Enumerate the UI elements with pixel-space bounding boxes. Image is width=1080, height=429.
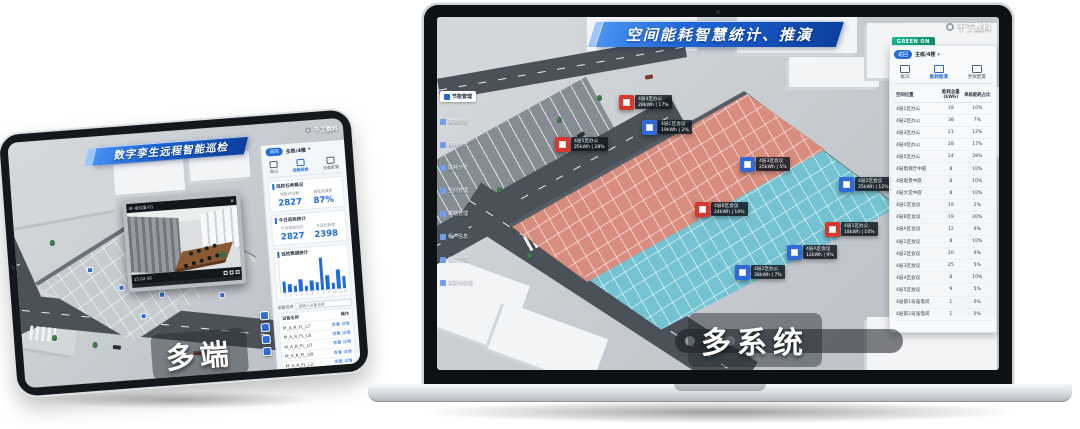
chairs [184, 264, 188, 268]
chart-bar [342, 276, 346, 288]
laptop-shadow [380, 399, 1060, 425]
floor-selector[interactable]: 主栋/4楼 ▾ [285, 146, 310, 155]
laptop-overlay-label: 多系统 [688, 313, 822, 367]
panel-header: 返回 主栋/4楼 ▾ [894, 50, 992, 59]
fullscreen-icon[interactable] [235, 269, 239, 273]
map-tool-button[interactable] [260, 311, 270, 321]
chart-category: 10 [333, 290, 337, 294]
floor-selector[interactable]: 主栋/4楼 ▾ [915, 51, 940, 58]
building-icon [787, 245, 802, 260]
panel-tabs: 概况 远程巡检 设备配置 [266, 154, 342, 179]
car [113, 345, 121, 350]
brand-logo: 千丁数科 [305, 123, 339, 134]
brand-logo: 千丁数科 [946, 21, 991, 33]
panel-tab[interactable]: 参数配置 [968, 65, 986, 80]
table-row[interactable]: 4层第2号强电间 1 0% [894, 309, 992, 321]
menu-icon [440, 165, 446, 171]
panel-tab[interactable]: 概况 [269, 161, 278, 176]
panel-tabs: 概况 能耗推演 参数配置 [894, 62, 992, 84]
plant [220, 251, 227, 258]
chart-bar [315, 282, 319, 290]
pause-icon[interactable] [223, 270, 227, 274]
energy-map-label[interactable]: 4层2区会议 25kWh | 12% [839, 177, 892, 192]
curtain [127, 217, 182, 274]
stat: 巡检完成率 87% [306, 187, 341, 206]
chart-category: 8 [322, 291, 326, 295]
chart-bar [319, 258, 325, 290]
chart-bar [336, 270, 341, 289]
camera-feed [127, 205, 241, 275]
sidebar: 节能管理 数据概览 能耗统计 能耗分析 [440, 91, 476, 286]
table-row[interactable]: 4层5区办公 24 28% [894, 151, 992, 163]
menu-icon [440, 257, 446, 263]
chart-category: 3 [294, 293, 298, 297]
laptop-base [368, 384, 1072, 402]
gear-icon [972, 65, 982, 73]
monitor-icon [269, 161, 278, 169]
flow-icon [934, 65, 944, 73]
building-icon [825, 222, 840, 237]
car [645, 74, 654, 79]
menu-icon [444, 94, 450, 100]
device-marker[interactable] [219, 292, 225, 298]
menu-icon [440, 142, 446, 148]
row-action-link[interactable]: 查看 详情 [336, 376, 354, 383]
building-icon [735, 265, 750, 280]
panel-tab[interactable]: 能耗推演 [930, 65, 948, 80]
camera-timestamp: 15:02:36 [134, 275, 152, 281]
energy-map-label[interactable]: 4层5区办公 25kWh | 28% [555, 137, 608, 152]
gear-icon [326, 156, 335, 164]
list-item[interactable]: M_A_R_FL_L3 查看 详情 [286, 375, 356, 388]
menu-icon [440, 188, 446, 194]
map-tool-button[interactable] [261, 335, 271, 345]
row-action-link[interactable]: 查看 详情 [332, 330, 350, 337]
map-tool-button[interactable] [262, 347, 272, 357]
chart-bar [325, 275, 329, 289]
device-marker[interactable] [118, 285, 124, 291]
panel-tab[interactable]: 设备配置 [322, 156, 339, 171]
energy-map-label[interactable]: 4层C区会议 19kWh | 2% [642, 120, 692, 135]
brand-name: 千丁数科 [314, 123, 339, 134]
building-block [789, 57, 879, 87]
row-action-link[interactable]: 查看 详情 [334, 348, 352, 355]
building-icon [740, 157, 755, 172]
table-row[interactable]: 4层4区办公 28 17% [894, 139, 992, 151]
tablet-overlay-label: 多端 [150, 328, 249, 381]
energy-panel: 返回 主栋/4楼 ▾ 概况 [889, 45, 997, 333]
chart-category: 2 [289, 293, 293, 297]
energy-map-label[interactable]: 4层1区办公 18kWh | 10% [825, 222, 878, 237]
energy-map-label[interactable]: 4层4区办公 28kWh | 17% [619, 95, 672, 110]
tablet-device: 数字孪生远程智能巡检 千丁数科 返回 主栋/4楼 ▾ [0, 109, 369, 397]
table-row[interactable]: 4层2区办公 38 7% [894, 115, 992, 127]
sidebar-item[interactable]: 变配电管理 [440, 279, 476, 286]
building-block [113, 160, 185, 195]
table-row[interactable]: 4层4区会议 8 10% [894, 272, 992, 284]
chart-category: 9 [327, 290, 331, 294]
sidebar-item[interactable]: 策略管理 [440, 210, 476, 217]
laptop-screen: 4层4区办公 28kWh | 17% 4层C区会议 19kWh | 2% [437, 17, 999, 370]
building-icon [642, 120, 657, 135]
menu-icon [440, 119, 446, 125]
chart-bars [278, 255, 347, 294]
sidebar-item[interactable]: 数据概览 [440, 118, 476, 125]
chart-category: 12 [344, 289, 348, 293]
building-icon [695, 202, 710, 217]
chart-category: 7 [316, 291, 320, 295]
patrol-bar-chart: 巡检数据统计 123456789101112 [273, 244, 352, 301]
device-marker[interactable] [87, 267, 93, 273]
stat: 今日巡检点位 2827 [275, 224, 310, 243]
menu-icon [440, 211, 446, 217]
chevron-down-icon: ▾ [937, 52, 940, 58]
table-row[interactable]: 4层3区会议 25 5% [894, 260, 992, 272]
building-icon [619, 95, 634, 110]
stat-card: 巡检任务概况 巡检点位数 2827 巡检完成率 87% [268, 176, 345, 213]
close-icon[interactable]: × [230, 198, 235, 204]
energy-map-label[interactable]: 4层2区办公 38kWh | 7% [735, 265, 785, 280]
sidebar-item[interactable]: 节能管理 [440, 91, 476, 102]
sidebar-item[interactable]: 租户信息 [440, 233, 476, 240]
back-button[interactable]: 返回 [894, 50, 912, 59]
row-action-link[interactable]: 查看 详情 [336, 386, 354, 388]
row-action-link[interactable]: 查看 详情 [335, 367, 353, 374]
stat-card: 今日巡检统计 今日巡检点位 2827 今日已巡检 2398 [270, 210, 347, 247]
energy-map-label[interactable]: 4层B区会议 24kWh | 10% [695, 202, 748, 217]
table-row[interactable]: 4层1区会议 8 10% [894, 236, 992, 248]
energy-map-label[interactable]: 4层A区会议 12kWh | 9% [787, 245, 837, 260]
energy-table: 空间位置 能耗总量 (kWh) 单栋能耗占比 4层1区办公 18 10% [894, 87, 992, 321]
menu-icon [440, 234, 446, 240]
chart-bar [294, 285, 298, 292]
device-marker[interactable] [140, 313, 146, 319]
laptop-device: 4层4区办公 28kWh | 17% 4层C区会议 19kWh | 2% [424, 5, 1012, 386]
sidebar-item[interactable]: 能耗统计 [440, 141, 476, 148]
chart-bar [288, 284, 292, 292]
tablet-screen: 数字孪生远程智能巡检 千丁数科 返回 主栋/4楼 ▾ [7, 118, 360, 389]
energy-map-label[interactable]: 4层3区会议 25kWh | 5% [740, 157, 790, 172]
table-row[interactable]: 4层第1号强电间 1 0% [894, 297, 992, 309]
chart-category: 5 [305, 292, 309, 296]
sidebar-item[interactable]: 缴费管理 [440, 256, 476, 263]
menu-icon [440, 280, 446, 286]
patrol-icon [296, 159, 305, 167]
chart-category: 6 [311, 291, 315, 295]
table-row[interactable]: 4层1区办公 18 10% [894, 103, 992, 115]
chart-category: 4 [300, 292, 304, 296]
laptop-title-banner: 空间能耗智慧统计、推演 [596, 21, 844, 47]
filter-label: 设备名称 [277, 303, 293, 310]
hero-composite: 数字孪生远程智能巡检 千丁数科 返回 主栋/4楼 ▾ [0, 0, 1080, 429]
sidebar-item[interactable]: 能耗分析 [440, 164, 476, 171]
chart-bar [299, 279, 303, 291]
laptop-title: 空间能耗智慧统计、推演 [626, 24, 813, 45]
panel-tab[interactable]: 概况 [900, 65, 910, 80]
stat: 今日已巡检 2398 [309, 221, 344, 240]
table-row[interactable]: 4层大堂中庭 8 10% [894, 188, 992, 200]
list-item[interactable]: M_A_R_FL_L6 查看 详情 [287, 385, 357, 389]
brand-name: 千丁数科 [957, 21, 991, 33]
row-action-link[interactable]: 查看 详情 [331, 320, 349, 327]
monitor-icon [900, 65, 910, 73]
logo-icon [305, 127, 311, 133]
chart-bar [304, 286, 308, 291]
panel-tab[interactable]: 远程巡检 [292, 158, 309, 173]
table-row[interactable]: 4层A区会议 12 9% [894, 224, 992, 236]
chart-bar [331, 282, 335, 289]
device-marker[interactable] [159, 292, 165, 298]
sidebar-item[interactable]: 空间管理 [440, 187, 476, 194]
tablet-side-panel: 返回 主栋/4楼 ▾ 概况 [260, 140, 361, 370]
table-row[interactable]: 4层5区会议 9 5% [894, 284, 992, 296]
table-header: 空间位置 能耗总量 (kWh) 单栋能耗占比 [894, 87, 992, 103]
chevron-down-icon: ▾ [308, 146, 311, 152]
chart-category: 1 [283, 293, 287, 297]
tablet-shadow [26, 390, 336, 410]
back-button[interactable]: 返回 [265, 147, 283, 156]
chart-bar [282, 282, 286, 293]
camera-popup[interactable]: 4F-会议室-01 × 15:02:36 [122, 192, 247, 293]
building-icon [839, 177, 854, 192]
table-row[interactable]: 4层3区办公 21 12% [894, 127, 992, 139]
chart-bar [310, 281, 314, 291]
map-tool-button[interactable] [260, 323, 270, 333]
list-item[interactable]: M_A_R_FL_L9 查看 详情 [285, 366, 355, 381]
table-row[interactable]: 4层电梯厅中庭 8 10% [894, 163, 992, 175]
device-list: 设备名称 操作 M_A_R_FL_L7 查看 详情 M_A_R_FL_L [278, 308, 359, 389]
snapshot-icon[interactable] [229, 270, 233, 274]
camera-title: 4F-会议室-01 [128, 204, 153, 212]
table-row[interactable]: 4层B区会议 19 20% [894, 212, 992, 224]
logo-icon [946, 23, 954, 31]
table-row[interactable]: 4层2区会议 20 9% [894, 248, 992, 260]
chart-category: 11 [338, 289, 342, 293]
stat: 巡检点位数 2827 [273, 190, 308, 209]
building-icon [555, 137, 570, 152]
row-action-link[interactable]: 查看 详情 [334, 358, 352, 365]
table-row[interactable]: 4层观景中庭 8 10% [894, 176, 992, 188]
table-row[interactable]: 4层C区会议 19 2% [894, 200, 992, 212]
row-action-link[interactable]: 查看 详情 [333, 339, 351, 346]
